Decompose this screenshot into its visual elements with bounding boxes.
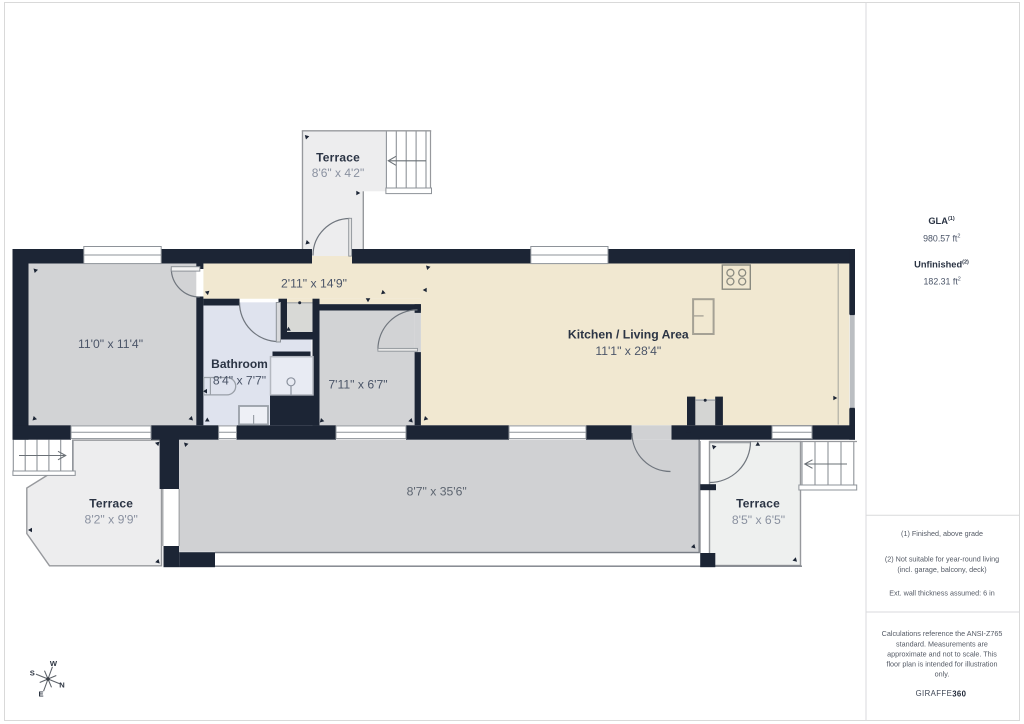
svg-text:2'11" x 14'9": 2'11" x 14'9" xyxy=(281,276,347,290)
svg-text:11'1" x 28'4": 11'1" x 28'4" xyxy=(595,344,661,358)
svg-text:(2) Not suitable for year-roun: (2) Not suitable for year-round living xyxy=(885,554,999,563)
svg-text:Ext. wall thickness assumed: 6: Ext. wall thickness assumed: 6 in xyxy=(889,589,994,598)
svg-text:11'0" x 11'4": 11'0" x 11'4" xyxy=(78,337,143,351)
svg-text:floor plan is intended for ill: floor plan is intended for illustration xyxy=(886,660,997,669)
svg-text:182.31 ft2: 182.31 ft2 xyxy=(924,277,961,287)
svg-text:(incl. garage, balcony, deck): (incl. garage, balcony, deck) xyxy=(897,565,986,574)
svg-text:8'2" x 9'9": 8'2" x 9'9" xyxy=(85,513,138,527)
svg-text:Terrace: Terrace xyxy=(89,497,133,511)
svg-text:approximate and not to scale.: approximate and not to scale. This xyxy=(887,649,997,658)
svg-text:GIRAFFE360: GIRAFFE360 xyxy=(916,689,967,698)
svg-text:980.57 ft2: 980.57 ft2 xyxy=(923,234,960,244)
svg-text:N: N xyxy=(59,681,64,690)
svg-text:E: E xyxy=(38,690,43,699)
svg-text:W: W xyxy=(50,659,58,668)
svg-text:standard. Measurements are: standard. Measurements are xyxy=(896,639,988,648)
svg-text:Bathroom: Bathroom xyxy=(211,357,268,371)
svg-text:only.: only. xyxy=(935,670,950,679)
svg-text:Unfinished(2): Unfinished(2) xyxy=(914,259,969,269)
svg-text:Kitchen / Living Area: Kitchen / Living Area xyxy=(568,328,689,342)
svg-text:Calculations reference the ANS: Calculations reference the ANSI-Z765 xyxy=(882,629,1003,638)
svg-text:8'7" x 35'6": 8'7" x 35'6" xyxy=(407,484,467,498)
svg-text:(1) Finished, above grade: (1) Finished, above grade xyxy=(901,529,983,538)
svg-text:Terrace: Terrace xyxy=(316,151,360,165)
svg-text:8'5" x 6'5": 8'5" x 6'5" xyxy=(732,513,785,527)
svg-text:Terrace: Terrace xyxy=(736,496,780,510)
svg-text:7'11" x 6'7": 7'11" x 6'7" xyxy=(328,377,387,391)
svg-text:S: S xyxy=(30,668,35,677)
svg-text:8'6" x 4'2": 8'6" x 4'2" xyxy=(312,166,364,180)
svg-text:8'4" x 7'7": 8'4" x 7'7" xyxy=(213,373,266,387)
